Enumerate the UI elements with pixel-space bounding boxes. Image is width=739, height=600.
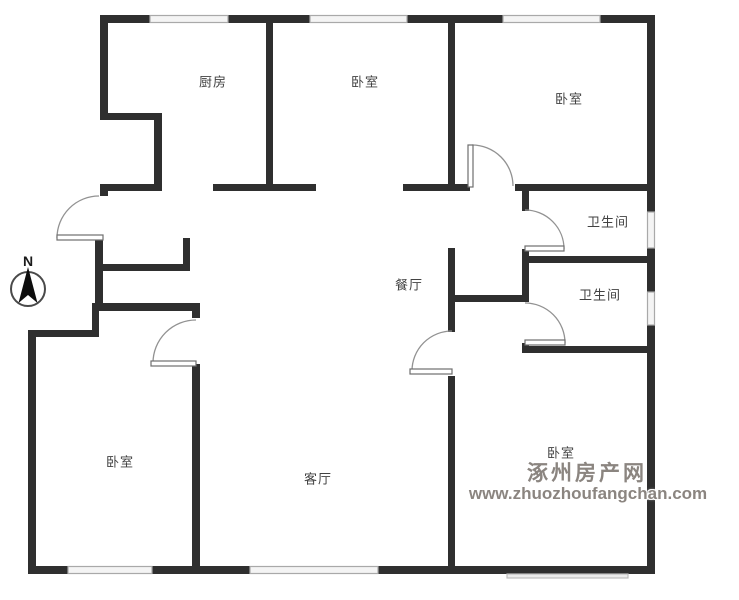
door-leaf	[525, 246, 564, 251]
room-label-bedroom-bottom-left: 卧室	[106, 452, 134, 471]
door-arc	[525, 210, 564, 249]
door-arc	[412, 331, 452, 371]
room-label-bedroom-top-right: 卧室	[555, 89, 583, 108]
floorplan-canvas: N 厨房 卧室 卧室 卫生间 餐厅 卫生间 卧室 客厅 卧室 涿州房产网 www…	[0, 0, 739, 600]
door-leaf	[410, 369, 452, 374]
door-leaf	[57, 235, 103, 240]
compass-icon: N	[11, 253, 45, 306]
room-label-dining: 餐厅	[395, 275, 423, 294]
bedroom-bottom-left-door	[151, 320, 196, 366]
door-arc	[472, 145, 513, 186]
room-label-bedroom-top-middle: 卧室	[351, 72, 379, 91]
bedroom-top-right-door	[468, 145, 513, 187]
room-label-kitchen: 厨房	[199, 72, 227, 91]
bedroom-bottom-right-door	[410, 331, 452, 374]
door-arc	[57, 196, 99, 238]
room-label-bathroom-1: 卫生间	[587, 212, 629, 231]
door-leaf	[525, 340, 565, 345]
door-leaf	[468, 145, 473, 187]
door-leaf	[151, 361, 196, 366]
door-arc	[525, 303, 565, 343]
bathroom-1-door	[525, 210, 564, 251]
room-label-living: 客厅	[304, 469, 332, 488]
room-label-bathroom-2: 卫生间	[579, 285, 621, 304]
door-arc	[153, 320, 196, 363]
compass-north-label: N	[23, 253, 33, 269]
watermark-url: www.zhuozhoufangchan.com	[469, 484, 707, 504]
watermark-site-name: 涿州房产网	[527, 457, 647, 487]
entry-door	[57, 196, 103, 240]
bathroom-2-door	[525, 303, 565, 345]
